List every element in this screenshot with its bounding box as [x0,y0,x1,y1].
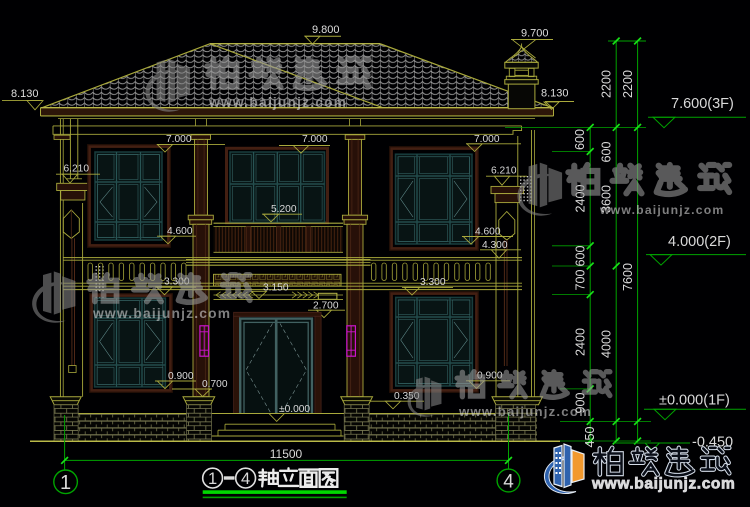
svg-text:4000: 4000 [600,330,614,358]
svg-text:4.600: 4.600 [475,227,501,238]
svg-text:7.000: 7.000 [166,134,192,145]
svg-text:600: 600 [573,129,587,150]
svg-text:3.300: 3.300 [420,277,446,288]
svg-text:3.150: 3.150 [263,283,289,294]
svg-text:9.700: 9.700 [521,28,549,40]
svg-text:7.600(3F): 7.600(3F) [671,96,734,112]
svg-text:4: 4 [503,472,514,493]
svg-text:11500: 11500 [270,447,303,461]
svg-text:1: 1 [208,470,217,488]
svg-text:0.700: 0.700 [202,379,228,390]
svg-text:www.baijunjz.com: www.baijunjz.com [208,95,347,110]
svg-text:6.210: 6.210 [64,164,90,175]
svg-text:8.130: 8.130 [11,88,39,100]
svg-text:7.000: 7.000 [302,134,328,145]
svg-text:700: 700 [574,269,588,290]
svg-text:7600: 7600 [621,263,635,291]
svg-text:www.baijunjz.com: www.baijunjz.com [92,306,231,321]
svg-text:±0.000(1F): ±0.000(1F) [659,393,730,409]
svg-text:www.baijunjz.com: www.baijunjz.com [591,476,735,493]
svg-text:4.600: 4.600 [167,226,193,237]
svg-text:www.baijunjz.com: www.baijunjz.com [599,203,724,217]
svg-text:4.000(2F): 4.000(2F) [668,234,731,250]
svg-text:600: 600 [600,141,614,162]
svg-text:8.130: 8.130 [541,88,569,100]
svg-text:2200: 2200 [600,70,614,98]
svg-text:4.300: 4.300 [482,240,508,251]
svg-text:600: 600 [574,245,588,266]
svg-text:±0.000: ±0.000 [279,404,310,415]
svg-text:450: 450 [583,426,597,447]
svg-text:4: 4 [241,470,250,488]
svg-text:6.210: 6.210 [491,165,517,176]
svg-text:2200: 2200 [621,70,635,98]
svg-text:www.baijunjz.com: www.baijunjz.com [458,404,592,419]
svg-text:2400: 2400 [574,328,588,356]
svg-text:9.800: 9.800 [312,24,340,36]
svg-text:5.200: 5.200 [271,204,297,215]
svg-text:1: 1 [60,472,71,494]
